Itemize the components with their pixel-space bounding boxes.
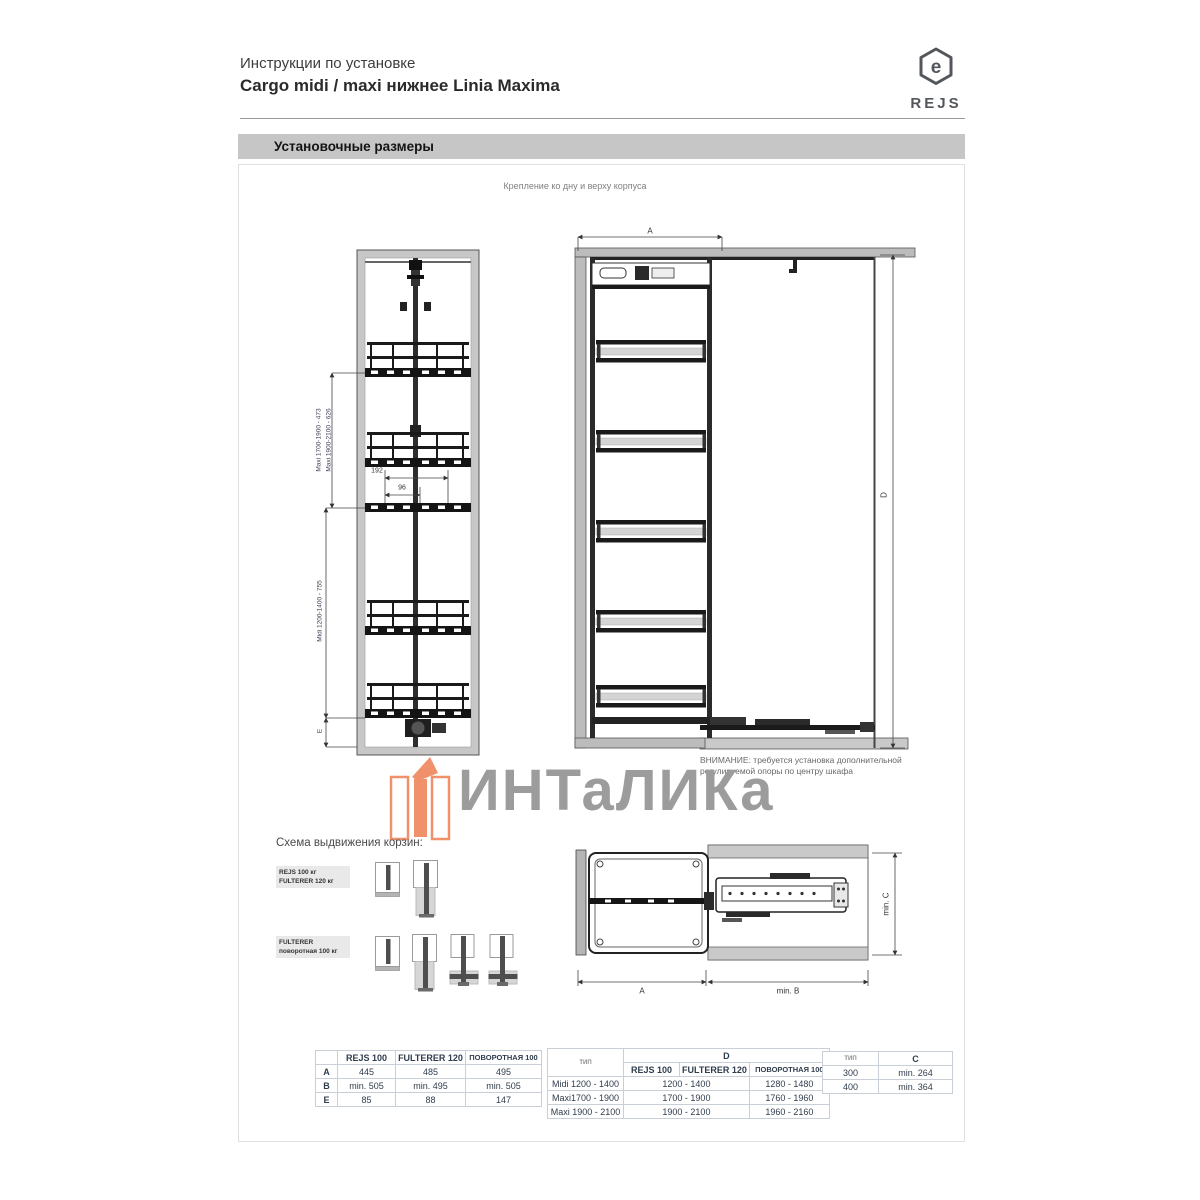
dim-192-label: 192 — [371, 468, 383, 475]
t3-cell: min. 364 — [879, 1080, 953, 1094]
t2-sub-povorotnaya: ПОВОРОТНАЯ 100 — [749, 1063, 829, 1077]
t1-cell: min. 505 — [466, 1079, 542, 1093]
t3-cell: 400 — [823, 1080, 879, 1094]
dim-maxi-1-label: Maxi 1700-1900 - 473 — [316, 408, 323, 471]
t1-row-b-label: B — [316, 1079, 338, 1093]
section-bar: Установочные размеры — [238, 134, 965, 159]
t2-row-label: Maxi1700 - 1900 — [548, 1091, 624, 1105]
topview-dim-c-label: min. C — [882, 892, 891, 915]
header-divider — [240, 118, 965, 119]
t1-row-a-label: A — [316, 1065, 338, 1079]
t1-cell: 485 — [396, 1065, 466, 1079]
rejs-logo-icon: e — [917, 46, 955, 88]
t3-header-c: C — [879, 1052, 953, 1066]
t1-cell: 85 — [338, 1093, 396, 1107]
svg-text:e: e — [931, 57, 942, 78]
t1-cell: min. 505 — [338, 1079, 396, 1093]
t3-header-tip: ТИП — [823, 1052, 879, 1066]
t2-sub-fulterer: FULTERER 120 — [680, 1063, 750, 1077]
watermark-text: ИНТаЛИКа — [458, 757, 775, 824]
t2-row-label: Maxi 1900 - 2100 — [548, 1105, 624, 1119]
t2-cell: 1760 - 1960 — [749, 1091, 829, 1105]
dimensions-table-abe: REJS 100 FULTERER 120 ПОВОРОТНАЯ 100 A 4… — [315, 1050, 542, 1107]
t2-span-header: D — [624, 1049, 830, 1063]
t1-cell: 445 — [338, 1065, 396, 1079]
t1-row-e-label: E — [316, 1093, 338, 1107]
t1-cell: 88 — [396, 1093, 466, 1107]
table-row: 400 min. 364 — [823, 1080, 953, 1094]
t1-header-blank — [316, 1051, 338, 1065]
t2-cell: 1700 - 1900 — [624, 1091, 750, 1105]
doc-type-label: Инструкции по установке — [240, 55, 415, 72]
dimensions-table-d: ТИП D REJS 100 FULTERER 120 ПОВОРОТНАЯ 1… — [547, 1048, 830, 1119]
t1-cell: 495 — [466, 1065, 542, 1079]
instruction-page: Инструкции по установке Cargo midi / max… — [0, 0, 1200, 1200]
topview-dim-a-label: A — [639, 987, 644, 996]
intalika-logo-icon — [388, 755, 452, 843]
left-cabinet-drawing — [357, 250, 479, 755]
topview-dim-b-label: min. B — [777, 987, 800, 996]
t2-row-label: Midi 1200 - 1400 — [548, 1077, 624, 1091]
t1-header-fulterer: FULTERER 120 — [396, 1051, 466, 1065]
t1-cell: min. 495 — [396, 1079, 466, 1093]
t2-cell: 1280 - 1480 — [749, 1077, 829, 1091]
brand-logo: e REJS — [905, 46, 967, 112]
table-row: Midi 1200 - 1400 1200 - 1400 1280 - 1480 — [548, 1077, 830, 1091]
t3-cell: min. 264 — [879, 1066, 953, 1080]
brand-name: REJS — [905, 95, 967, 112]
drawing-caption: Крепление ко дну и верху корпуса — [455, 181, 695, 191]
t1-cell: 147 — [466, 1093, 542, 1107]
dim-a-label: A — [647, 227, 652, 236]
table-row: B min. 505 min. 495 min. 505 — [316, 1079, 542, 1093]
table-row: 300 min. 264 — [823, 1066, 953, 1080]
section-title: Установочные размеры — [238, 134, 965, 154]
table-row: Maxi1700 - 1900 1700 - 1900 1760 - 1960 — [548, 1091, 830, 1105]
table-row: Maxi 1900 - 2100 1900 - 2100 1960 - 2160 — [548, 1105, 830, 1119]
table-row: A 445 485 495 — [316, 1065, 542, 1079]
front-view-drawing — [240, 225, 965, 785]
t3-cell: 300 — [823, 1066, 879, 1080]
t2-cell: 1960 - 2160 — [749, 1105, 829, 1119]
dim-d-label: D — [880, 492, 889, 498]
dim-midi-label: Midi 1200-1400 - 755 — [317, 580, 324, 641]
dim-e-label: E — [317, 729, 324, 733]
t1-header-rejs: REJS 100 — [338, 1051, 396, 1065]
t1-header-povorotnaya: ПОВОРОТНАЯ 100 — [466, 1051, 542, 1065]
top-view-drawing — [240, 840, 965, 1005]
right-cabinet-drawing — [575, 248, 915, 749]
t2-cell: 1900 - 2100 — [624, 1105, 750, 1119]
t2-corner: ТИП — [548, 1049, 624, 1077]
page-title: Cargo midi / maxi нижнее Linia Maxima — [240, 76, 560, 96]
right-dimensions — [578, 237, 905, 748]
table-row: E 85 88 147 — [316, 1093, 542, 1107]
t2-sub-rejs: REJS 100 — [624, 1063, 680, 1077]
dim-96-label: 96 — [398, 485, 406, 492]
dim-maxi-2-label: Maxi 1900-2100 - 626 — [326, 408, 333, 471]
t2-cell: 1200 - 1400 — [624, 1077, 750, 1091]
dimensions-table-c: ТИП C 300 min. 264 400 min. 364 — [822, 1051, 953, 1094]
